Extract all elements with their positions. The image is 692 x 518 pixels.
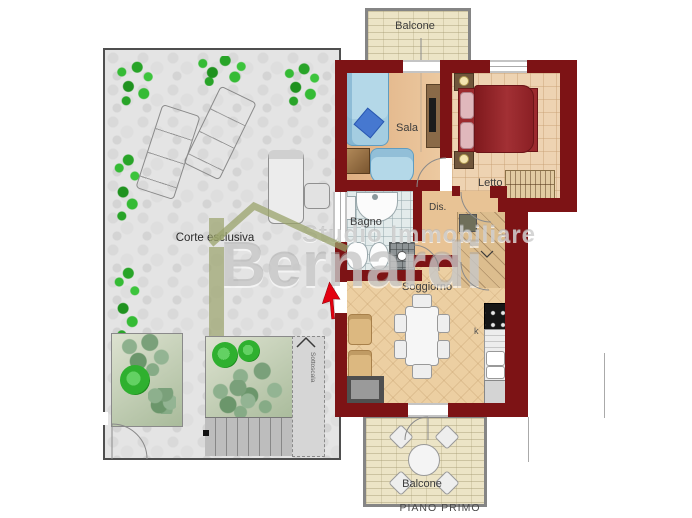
- entrance-arrow-icon: [320, 281, 341, 319]
- plan-overlay: [0, 0, 692, 518]
- floor-plan: Balcone Sala Letto Bagno Dis. Soggiorno …: [0, 0, 692, 518]
- door-arc-courtyard-gate: [112, 424, 147, 459]
- stairs-down-chevron-icon: [481, 251, 493, 257]
- door-arc-balcony-bottom: [405, 417, 428, 440]
- door-arc-dis-soggiorno: [461, 262, 489, 290]
- door-arc-letto: [461, 192, 491, 222]
- stairs-up-chevron-icon: [297, 338, 315, 347]
- door-arc-sala-dis: [417, 158, 446, 187]
- door-arc-bagno: [413, 245, 439, 271]
- logo-roof-icon: [211, 206, 347, 249]
